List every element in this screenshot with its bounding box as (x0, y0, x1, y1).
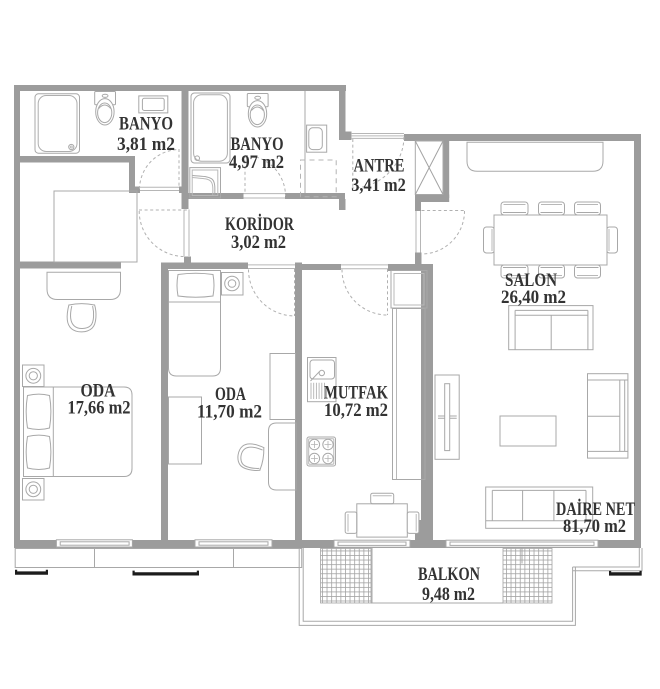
svg-text:3,02 m2: 3,02 m2 (231, 232, 286, 253)
svg-text:10,72 m2: 10,72 m2 (324, 400, 388, 421)
svg-text:26,40 m2: 26,40 m2 (501, 287, 566, 308)
svg-text:17,66 m2: 17,66 m2 (68, 397, 131, 418)
svg-text:4,97 m2: 4,97 m2 (229, 152, 284, 173)
svg-text:81,70 m2: 81,70 m2 (563, 516, 626, 537)
svg-text:3,41 m2: 3,41 m2 (351, 175, 406, 196)
svg-text:3,81 m2: 3,81 m2 (117, 134, 175, 155)
svg-text:9,48 m2: 9,48 m2 (422, 584, 475, 605)
svg-text:BALKON: BALKON (418, 564, 480, 585)
svg-text:11,70 m2: 11,70 m2 (197, 402, 262, 423)
svg-text:BANYO: BANYO (119, 114, 173, 135)
svg-text:ANTRE: ANTRE (354, 156, 405, 177)
